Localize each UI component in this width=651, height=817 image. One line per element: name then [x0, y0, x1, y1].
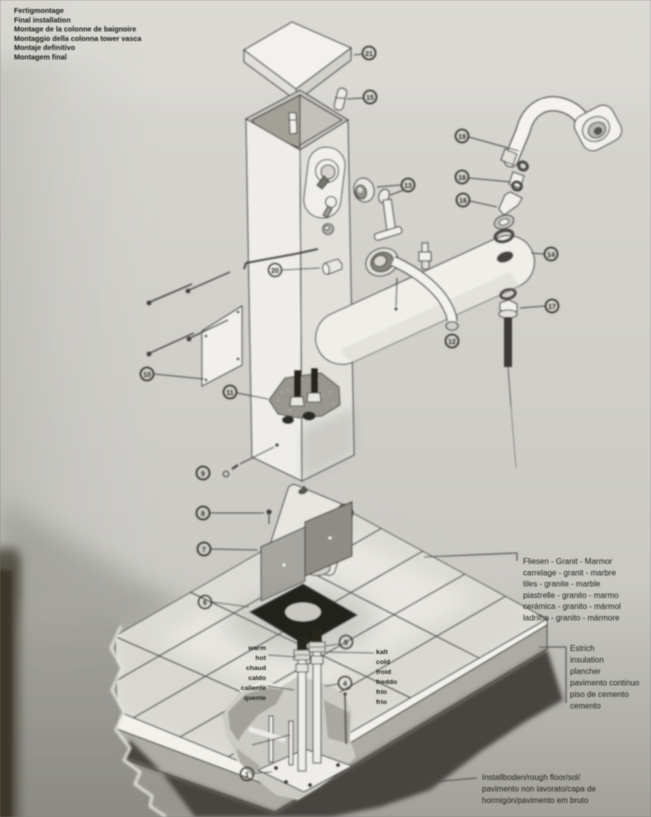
- svg-text:6: 6: [203, 600, 207, 607]
- svg-text:caliente: caliente: [241, 685, 267, 692]
- svg-text:frío: frío: [376, 689, 387, 696]
- svg-text:4: 4: [343, 681, 347, 688]
- svg-text:freddo: freddo: [376, 679, 397, 686]
- svg-text:carrelage - granit - marbre: carrelage - granit - marbre: [523, 568, 616, 577]
- svg-text:froid: froid: [376, 669, 391, 676]
- svg-text:20: 20: [271, 268, 279, 275]
- svg-text:Estrich: Estrich: [570, 644, 594, 653]
- svg-text:pavimento continuo: pavimento continuo: [570, 679, 640, 688]
- svg-text:quente: quente: [244, 695, 266, 702]
- svg-text:13: 13: [404, 183, 412, 190]
- svg-text:Installboden/rough floor/sol/: Installboden/rough floor/sol/: [482, 773, 581, 782]
- svg-text:piastrelle - granito - marmo: piastrelle - granito - marmo: [523, 591, 619, 600]
- svg-text:chaud: chaud: [246, 665, 266, 672]
- svg-text:10: 10: [143, 372, 151, 379]
- svg-text:hot: hot: [255, 655, 266, 662]
- svg-text:hormigón/pavimento em bruto: hormigón/pavimento em bruto: [482, 796, 589, 805]
- svg-text:cold: cold: [376, 659, 390, 666]
- svg-text:Montaggio della colonna tower: Montaggio della colonna tower vasca: [14, 34, 142, 43]
- svg-text:12: 12: [448, 339, 456, 346]
- svg-text:Montagem final: Montagem final: [14, 53, 67, 62]
- svg-text:18: 18: [458, 175, 466, 182]
- svg-text:16: 16: [459, 198, 467, 205]
- svg-text:Montage de la colonne de baign: Montage de la colonne de baignoire: [14, 25, 136, 34]
- svg-text:5: 5: [344, 640, 348, 647]
- svg-text:Fertigmontage: Fertigmontage: [14, 6, 64, 15]
- svg-text:frio: frio: [376, 699, 387, 706]
- svg-text:tiles - granite - marble: tiles - granite - marble: [523, 580, 601, 589]
- svg-text:Montaje definitivo: Montaje definitivo: [14, 43, 76, 52]
- svg-text:warm: warm: [247, 645, 266, 652]
- svg-text:14: 14: [547, 252, 555, 259]
- svg-text:cemento: cemento: [570, 702, 601, 711]
- svg-text:21: 21: [365, 51, 373, 58]
- svg-text:Fliesen - Granit - Marmor: Fliesen - Granit - Marmor: [523, 557, 613, 566]
- svg-text:8: 8: [201, 511, 205, 518]
- svg-text:17: 17: [548, 304, 556, 311]
- svg-text:cerámica - granito - mármol: cerámica - granito - mármol: [523, 602, 621, 611]
- svg-text:piso de cemento: piso de cemento: [570, 690, 629, 699]
- svg-text:plancher: plancher: [570, 667, 601, 676]
- svg-text:11: 11: [226, 390, 234, 397]
- svg-text:15: 15: [366, 95, 374, 102]
- svg-text:19: 19: [458, 134, 466, 141]
- svg-text:7: 7: [202, 547, 206, 554]
- svg-text:Final installation: Final installation: [14, 15, 71, 24]
- svg-text:insulation: insulation: [570, 656, 604, 665]
- svg-text:kalt: kalt: [376, 649, 388, 656]
- svg-text:pavimento non lavorato/capa de: pavimento non lavorato/capa de: [482, 784, 596, 793]
- svg-text:1: 1: [245, 772, 249, 779]
- svg-text:ladrilho - granito - mármore: ladrilho - granito - mármore: [523, 614, 620, 623]
- svg-text:caldo: caldo: [248, 675, 266, 682]
- svg-text:9: 9: [201, 471, 205, 478]
